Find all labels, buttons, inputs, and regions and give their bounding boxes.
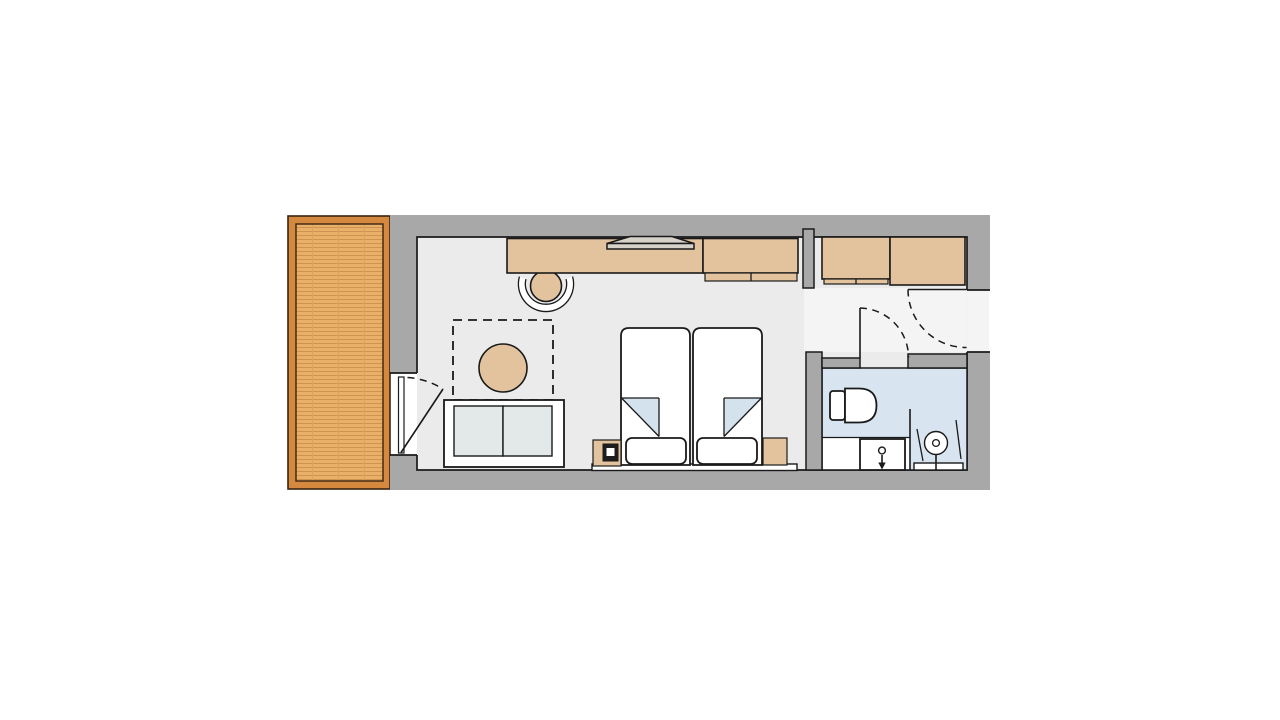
bathroom-divider-wall <box>806 352 822 470</box>
entry-wardrobe-left <box>822 237 890 279</box>
wardrobe-divider-stub <box>803 229 814 288</box>
sofa-cushion-right <box>503 406 552 456</box>
wardrobe-body <box>703 239 798 274</box>
balcony-deck <box>296 224 383 481</box>
sofa <box>444 400 564 467</box>
tv-screen-bar <box>607 244 694 250</box>
chair-seat <box>531 271 562 302</box>
pillow <box>697 438 757 464</box>
shower-rail <box>914 463 963 470</box>
right-wall-upper <box>967 215 990 290</box>
sofa-cushion-left <box>454 406 503 456</box>
toilet-bowl <box>845 389 877 423</box>
pillow <box>626 438 686 464</box>
toilet-tank <box>830 391 845 420</box>
bathroom-wall-left-segment <box>822 358 860 368</box>
faucet-icon <box>879 447 886 454</box>
bathroom <box>806 352 967 471</box>
entry-wardrobe-right <box>890 237 965 285</box>
wardrobe-entry <box>822 237 965 285</box>
telephone-detail <box>607 448 615 456</box>
bed-right <box>693 328 762 465</box>
wardrobe-room <box>703 239 798 282</box>
balcony <box>288 216 390 489</box>
left-wall <box>390 237 417 373</box>
nightstand-left <box>593 440 621 466</box>
nightstand-right <box>763 438 787 465</box>
right-wall-lower <box>967 352 990 490</box>
balcony-door-glass <box>399 377 405 453</box>
bed-left <box>621 328 690 465</box>
floor-plan <box>0 0 1280 720</box>
toilet <box>830 389 877 423</box>
bathroom-wall-right-segment <box>908 354 967 368</box>
round-side-table <box>479 344 527 392</box>
shower-head-icon <box>925 432 948 455</box>
entrance-opening-floor <box>967 291 989 352</box>
top-wall <box>390 215 990 237</box>
vanity-sink <box>860 439 905 470</box>
bottom-wall <box>390 470 990 490</box>
